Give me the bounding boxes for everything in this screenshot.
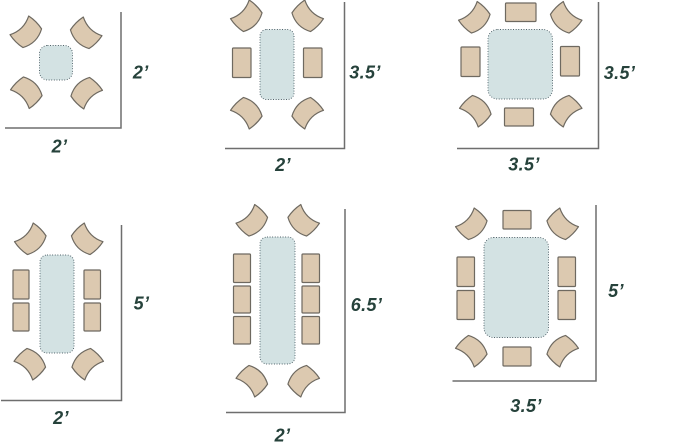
svg-text:2’: 2’ (274, 155, 291, 175)
svg-text:5’: 5’ (608, 281, 624, 301)
svg-text:2’: 2’ (132, 63, 149, 83)
svg-text:2’: 2’ (51, 136, 68, 156)
svg-text:3.5’: 3.5’ (349, 63, 381, 83)
svg-text:3.5’: 3.5’ (510, 396, 542, 416)
svg-text:2’: 2’ (52, 408, 69, 428)
svg-text:5’: 5’ (134, 294, 150, 314)
svg-text:6.5’: 6.5’ (351, 295, 383, 315)
svg-text:2’: 2’ (274, 426, 291, 442)
svg-text:3.5’: 3.5’ (604, 63, 636, 83)
svg-text:3.5’: 3.5’ (508, 155, 540, 175)
